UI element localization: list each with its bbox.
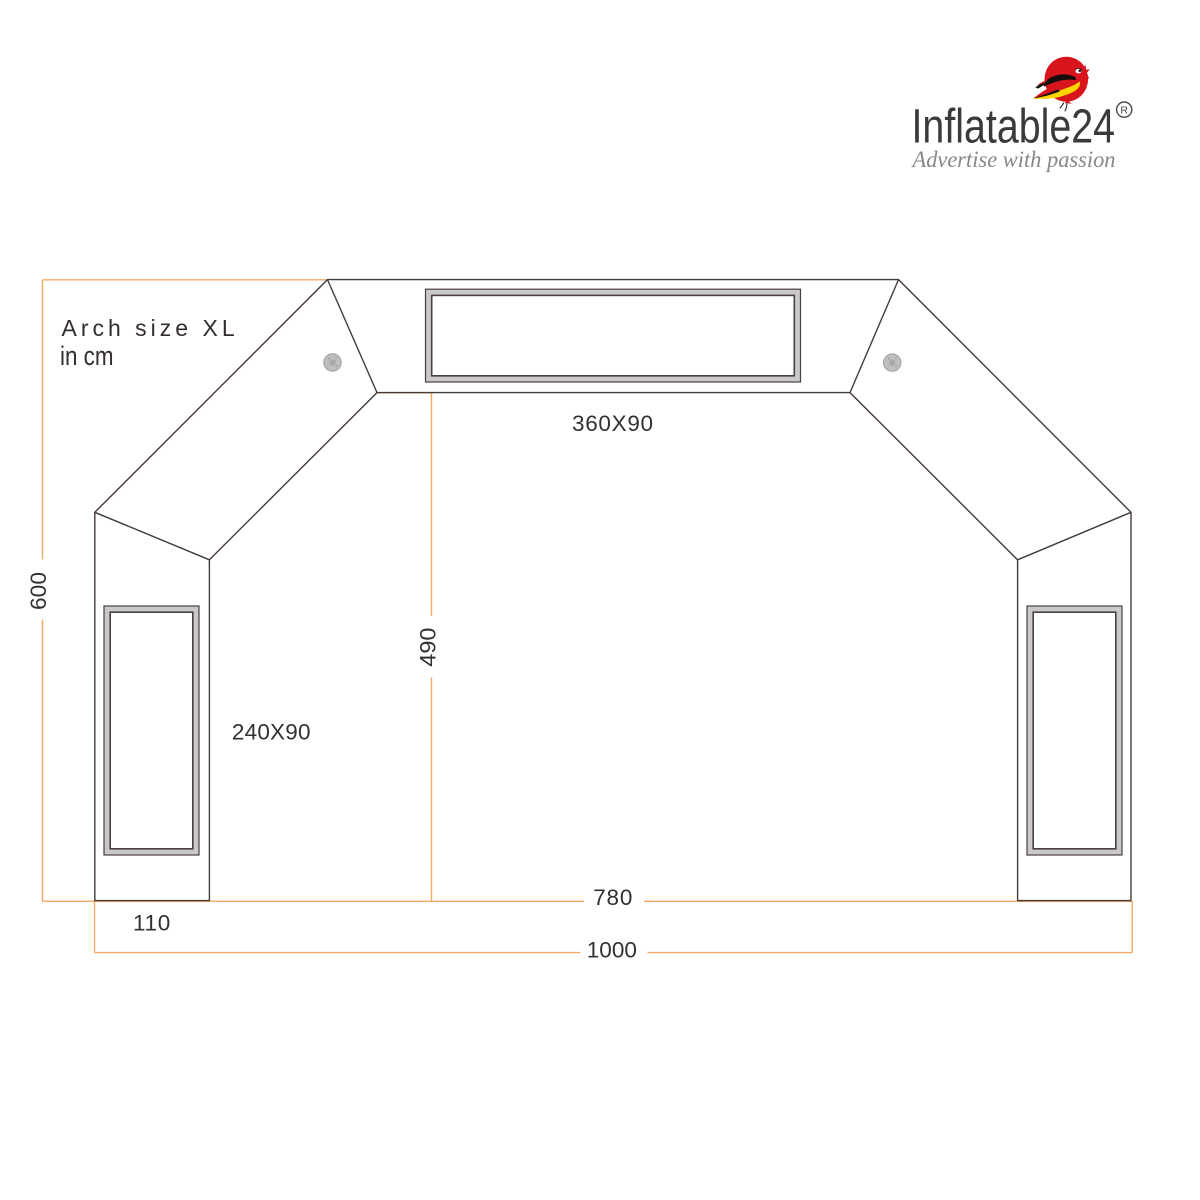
svg-text:Arch size XL: Arch size XL: [62, 315, 239, 341]
svg-text:110: 110: [133, 910, 171, 935]
svg-text:Advertise with passion: Advertise with passion: [911, 147, 1116, 173]
svg-text:360X90: 360X90: [572, 411, 654, 436]
svg-text:R: R: [1120, 104, 1128, 116]
svg-text:Inflatable24: Inflatable24: [912, 100, 1116, 154]
svg-text:600: 600: [26, 572, 51, 610]
svg-text:780: 780: [593, 885, 633, 910]
svg-text:in cm: in cm: [60, 341, 114, 371]
svg-text:240X90: 240X90: [232, 719, 311, 744]
svg-text:490: 490: [416, 628, 441, 667]
svg-text:1000: 1000: [587, 937, 637, 962]
